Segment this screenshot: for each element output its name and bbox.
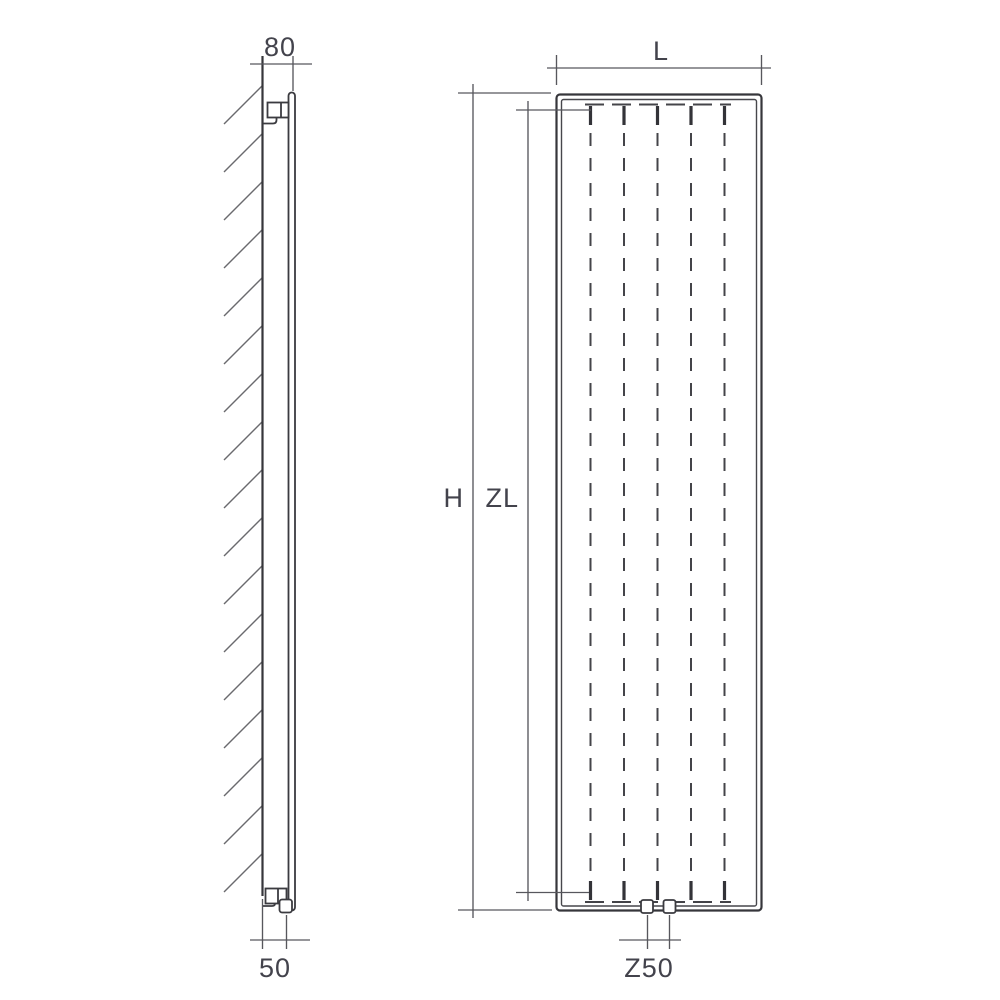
radiator-panel-side — [289, 93, 296, 911]
dim-label-H: H — [444, 483, 465, 513]
drawing-canvas: 80 50 L H ZL — [0, 0, 1000, 1000]
dim-label-50: 50 — [259, 953, 291, 983]
dimension-connection-Z50: Z50 — [619, 915, 681, 983]
dimensions: 80 50 L H ZL — [250, 32, 771, 983]
mounting-bracket-bottom — [263, 889, 293, 913]
dim-label-L: L — [653, 36, 669, 66]
side-view — [224, 56, 295, 913]
front-view — [557, 95, 762, 914]
dim-label-Z50: Z50 — [624, 953, 674, 983]
mounting-bracket-top — [263, 103, 289, 124]
bracket-top-body — [268, 103, 289, 118]
wall-hatch-pattern — [224, 86, 262, 892]
dim-label-ZL: ZL — [485, 483, 519, 513]
valve-connection-right — [664, 900, 676, 913]
dim-label-80: 80 — [264, 32, 296, 62]
convector-fins-hidden — [585, 105, 731, 903]
dimension-depth-80: 80 — [250, 32, 312, 91]
side-valve-connection — [280, 900, 293, 913]
bracket-top-hook — [263, 118, 277, 124]
valve-connection-left — [641, 900, 653, 913]
dimension-inner-height-ZL: ZL — [485, 101, 591, 901]
dimension-width-L: L — [547, 36, 771, 85]
radiator-body-outer — [557, 95, 762, 911]
radiator-technical-drawing: 80 50 L H ZL — [0, 0, 1000, 1000]
